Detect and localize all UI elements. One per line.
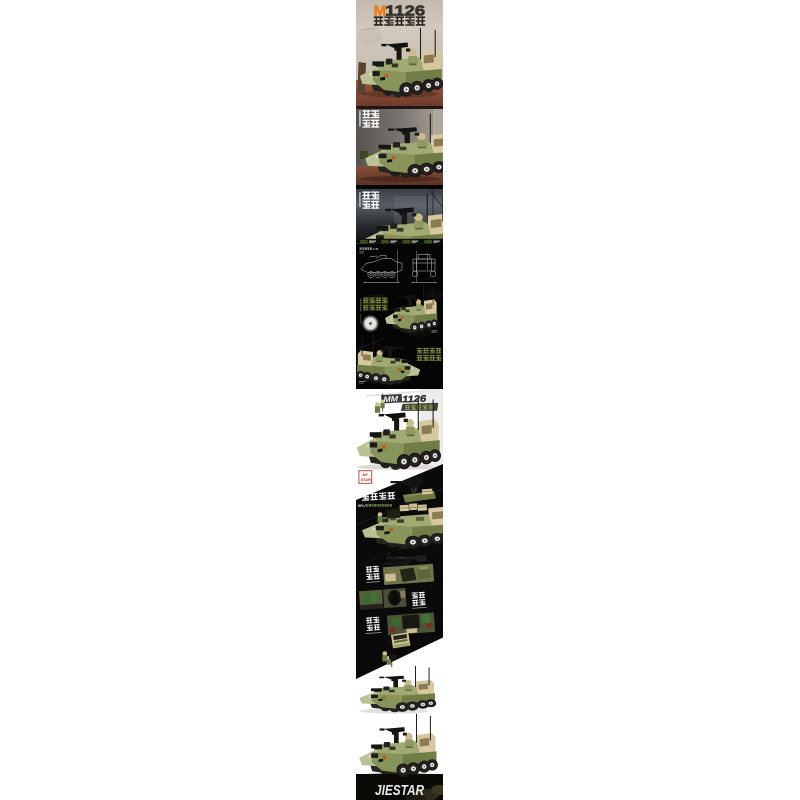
svg-text:STAR: STAR	[361, 477, 371, 482]
svg-text:MM: MM	[383, 394, 398, 404]
svg-text:JIESTAR: JIESTAR	[375, 782, 424, 799]
svg-text:1126: 1126	[402, 393, 427, 405]
svg-text:1:43: 1:43	[373, 247, 379, 251]
